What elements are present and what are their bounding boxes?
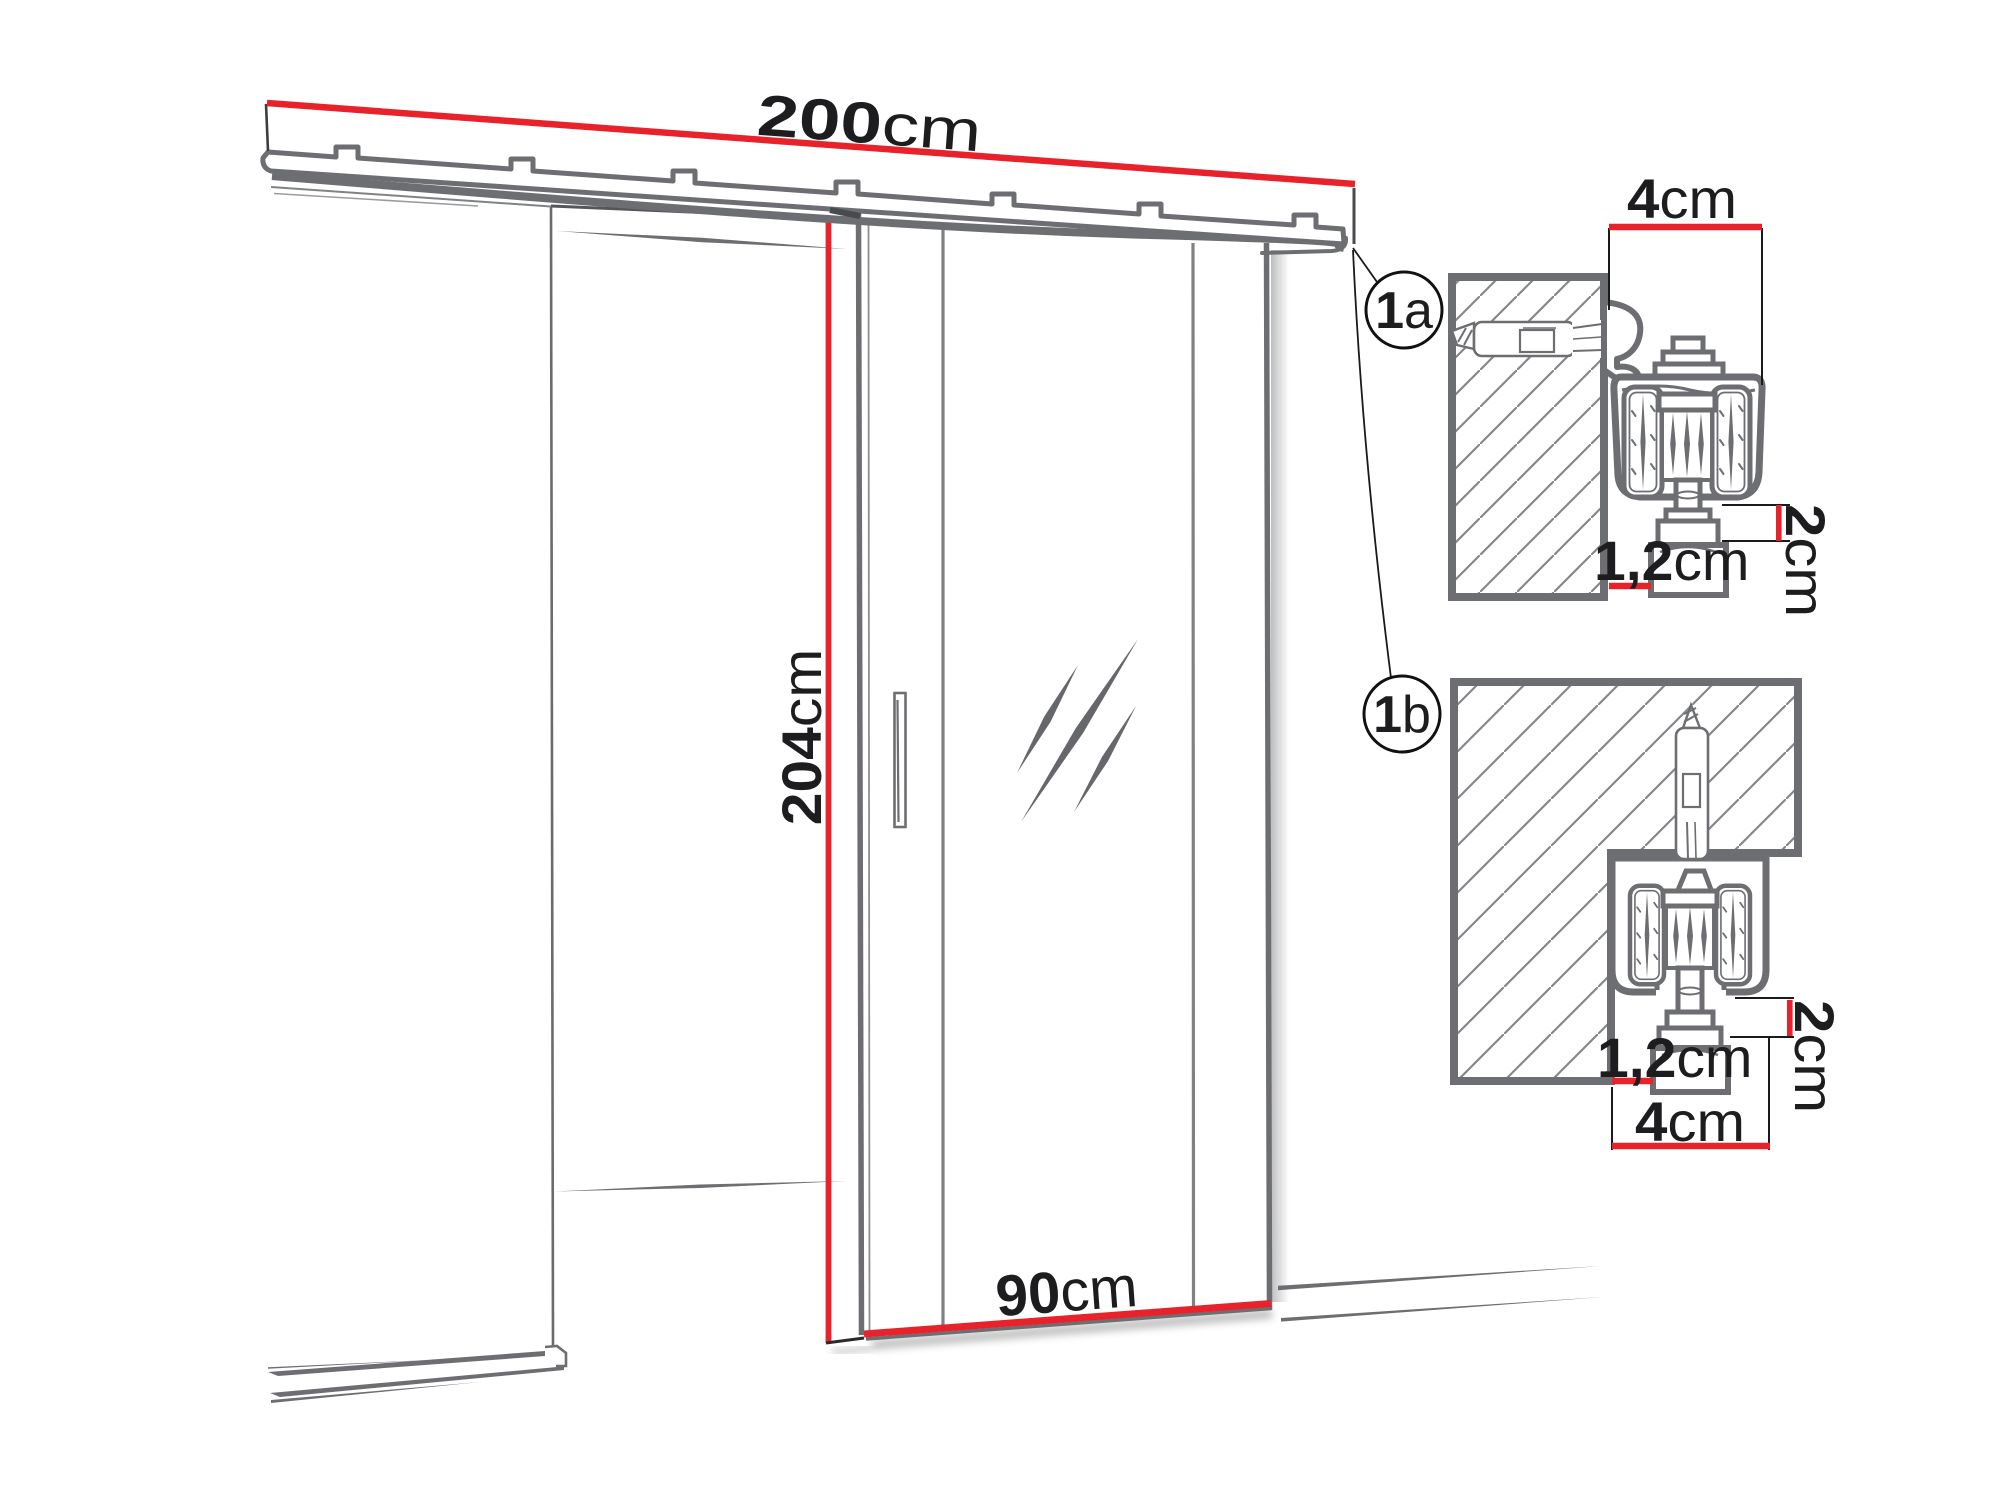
svg-text:90cm: 90cm [993,1254,1139,1329]
svg-text:1,2cm: 1,2cm [1597,1027,1753,1089]
svg-text:2cm: 2cm [1782,1000,1844,1113]
svg-text:204cm: 204cm [771,649,833,825]
svg-text:1,2cm: 1,2cm [1594,530,1750,592]
svg-text:1a: 1a [1375,282,1433,340]
svg-text:4cm: 4cm [1627,168,1737,231]
svg-text:1b: 1b [1373,686,1431,744]
svg-text:2cm: 2cm [1773,504,1835,617]
svg-text:4cm: 4cm [1635,1091,1745,1154]
